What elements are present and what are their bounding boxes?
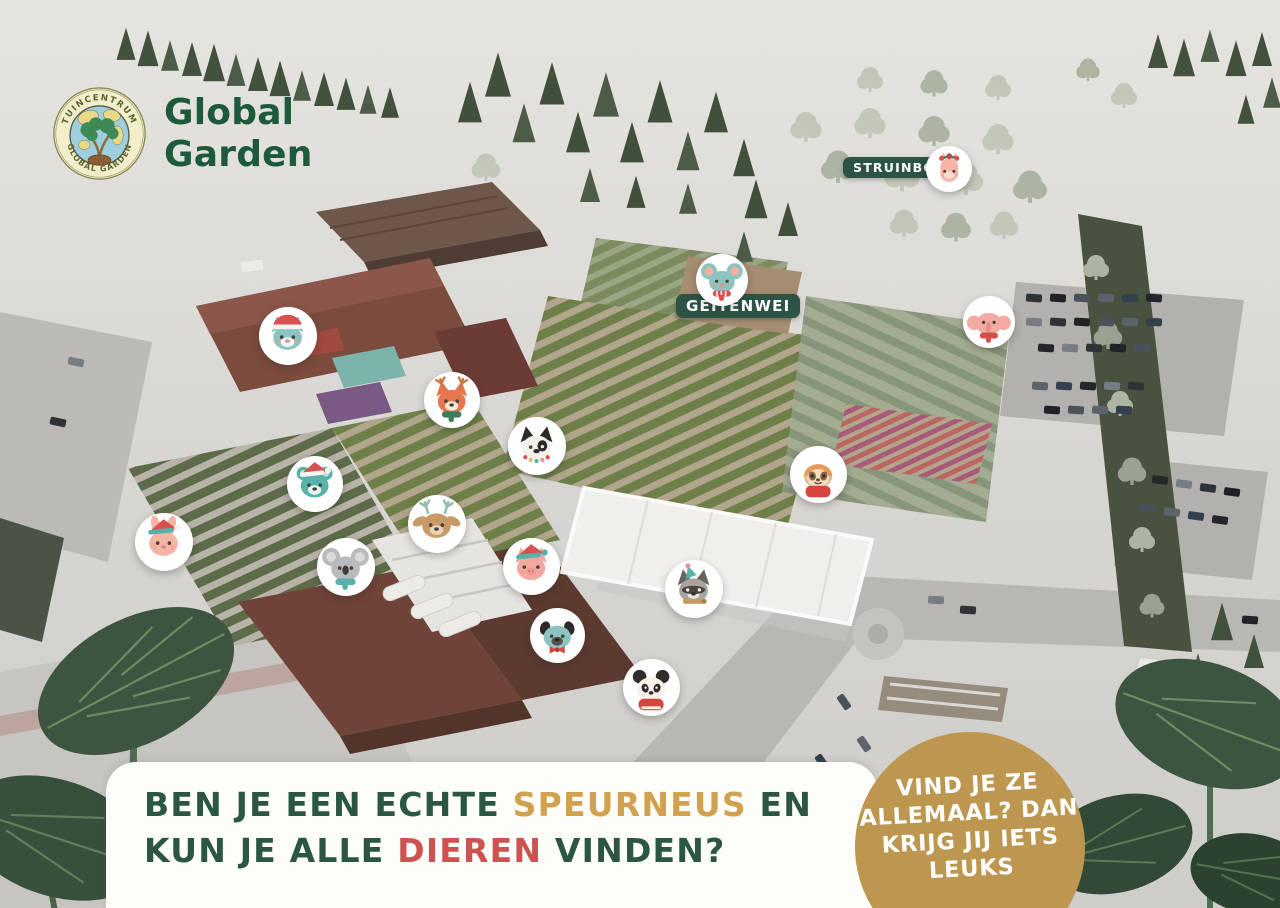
elephant-icon xyxy=(966,299,1012,345)
car xyxy=(1032,381,1049,390)
headline-line2: KUN JE ALLE DIEREN VINDEN? xyxy=(144,828,878,874)
car xyxy=(1128,381,1145,390)
car xyxy=(1242,615,1259,624)
animal-marker-bear xyxy=(287,456,343,512)
car xyxy=(1104,381,1121,390)
car xyxy=(1080,381,1097,390)
headline-segment: SPEURNEUS xyxy=(513,785,747,824)
car xyxy=(1122,293,1139,302)
animal-marker-rabbit xyxy=(135,513,193,571)
reward-badge-text: VIND JE ZEALLEMAAL? DANKRIJG JIJ IETSLEU… xyxy=(858,766,1083,889)
car xyxy=(1134,343,1151,352)
deer-icon xyxy=(411,498,462,549)
car xyxy=(1026,293,1043,302)
headline-segment: VINDEN? xyxy=(542,831,725,870)
pug-icon xyxy=(533,611,581,659)
animal-marker-deer xyxy=(408,495,466,553)
car xyxy=(960,605,977,614)
animal-marker-sloth xyxy=(790,446,847,503)
animal-marker-raccoon xyxy=(665,560,723,618)
car xyxy=(1026,317,1043,326)
car xyxy=(1146,317,1163,326)
car xyxy=(1044,405,1061,414)
animal-marker-fox xyxy=(424,372,480,428)
headline-segment: DIEREN xyxy=(397,831,542,870)
car xyxy=(1122,317,1139,326)
car xyxy=(1086,343,1103,352)
car xyxy=(1074,317,1091,326)
car xyxy=(1110,343,1127,352)
global-garden-logo: TUINCENTRUM GLOBAL GARDEN Global Garden xyxy=(52,86,313,181)
raccoon-icon xyxy=(668,563,719,614)
cat-icon xyxy=(262,310,313,361)
frenchie-icon xyxy=(511,420,562,471)
car xyxy=(1092,405,1109,414)
animal-marker-elephant xyxy=(963,296,1015,348)
animal-marker-koala xyxy=(317,538,375,596)
logo-wordmark: Global Garden xyxy=(164,92,313,174)
bear-icon xyxy=(290,459,339,508)
koala-icon xyxy=(320,541,371,592)
fox-icon xyxy=(427,375,476,424)
animal-marker-pug xyxy=(530,608,585,663)
animal-marker-mouse xyxy=(696,254,748,306)
pig-icon xyxy=(506,541,556,591)
panda-icon xyxy=(626,662,676,712)
car xyxy=(928,595,945,604)
sloth-icon xyxy=(793,449,843,499)
animal-marker-cat xyxy=(259,307,317,365)
headline-segment: EN xyxy=(747,785,812,824)
logo-badge-icon: TUINCENTRUM GLOBAL GARDEN xyxy=(52,86,147,181)
rabbit-icon xyxy=(138,516,189,567)
animal-marker-alpaca xyxy=(926,146,972,192)
car xyxy=(1038,343,1055,352)
car xyxy=(1050,293,1067,302)
logo-word-line2: Garden xyxy=(164,134,313,175)
car xyxy=(1074,293,1091,302)
alpaca-icon xyxy=(929,149,969,189)
car xyxy=(1098,317,1115,326)
headline-segment: KUN JE ALLE xyxy=(144,831,397,870)
car xyxy=(1056,381,1073,390)
car xyxy=(1098,293,1115,302)
car xyxy=(1050,317,1067,326)
car xyxy=(1062,343,1079,352)
poster: TUINCENTRUM GLOBAL GARDEN Global Garden … xyxy=(0,0,1280,908)
animal-marker-panda xyxy=(623,659,680,716)
mouse-icon xyxy=(699,257,745,303)
animal-marker-pig xyxy=(503,538,560,595)
car xyxy=(1068,405,1085,414)
headline-line1: BEN JE EEN ECHTE SPEURNEUS EN xyxy=(144,782,878,828)
headline-segment: BEN JE EEN ECHTE xyxy=(144,785,513,824)
logo-word-line1: Global xyxy=(164,92,313,133)
car xyxy=(1146,293,1163,302)
animal-marker-frenchie xyxy=(508,417,566,475)
question-banner: BEN JE EEN ECHTE SPEURNEUS EN KUN JE ALL… xyxy=(106,762,878,908)
car xyxy=(1116,405,1133,414)
